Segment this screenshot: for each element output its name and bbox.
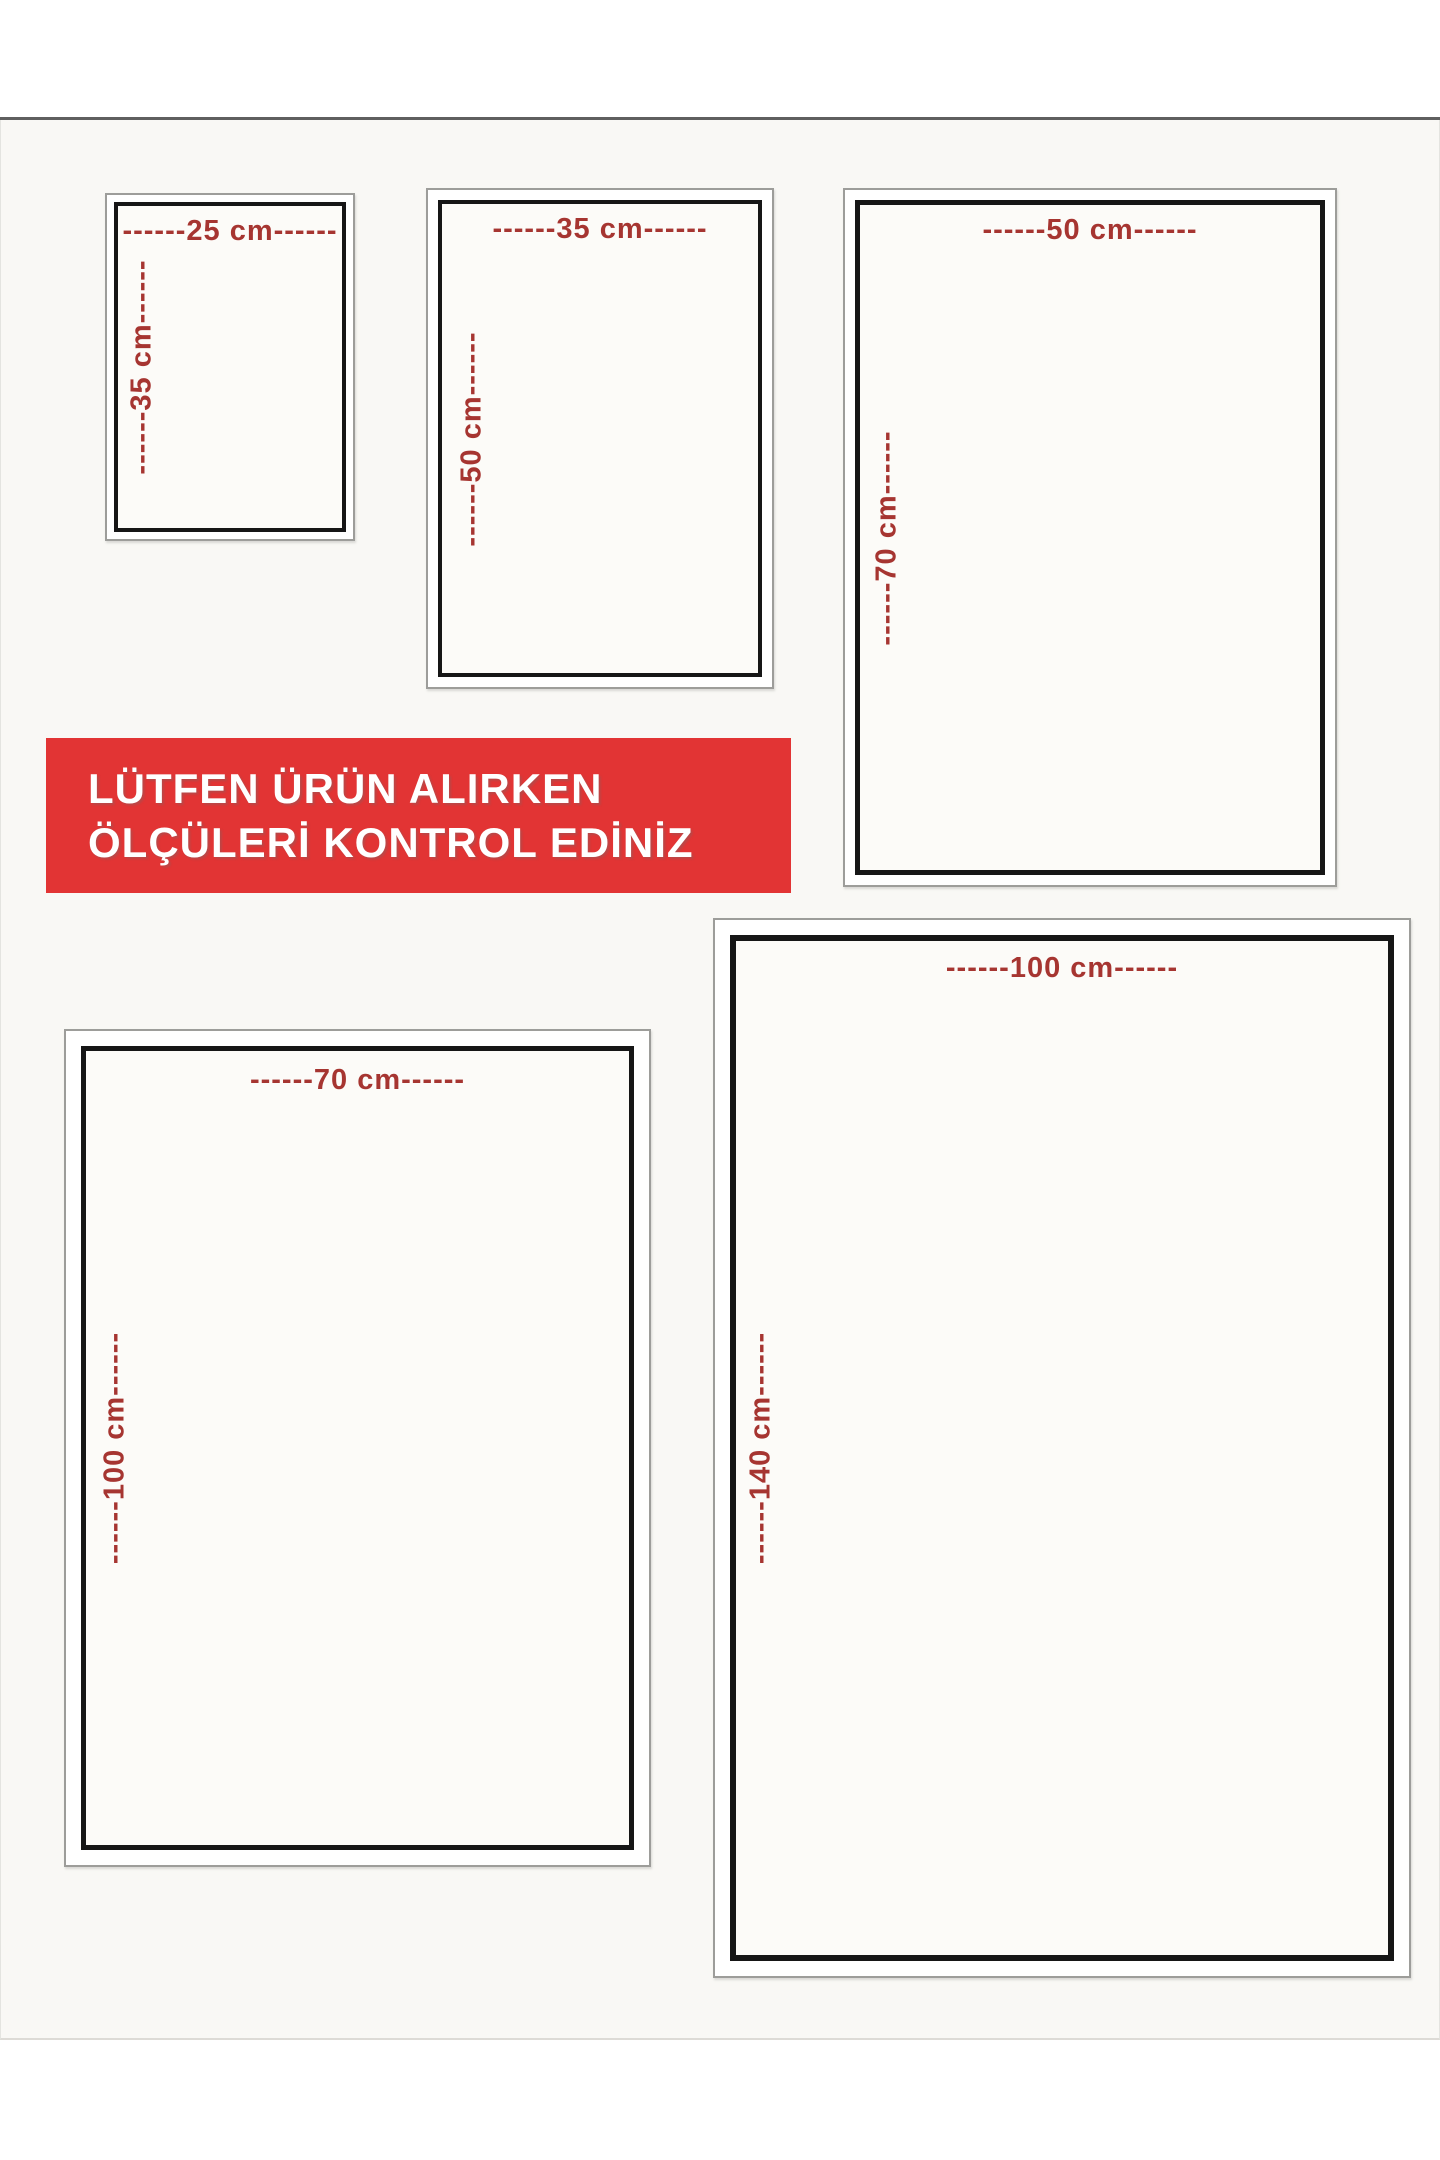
width-dimension-label: ------50 cm------ — [860, 214, 1320, 247]
size-box-70x100-inner: ------70 cm------ ------100 cm------ — [81, 1046, 634, 1850]
height-dimension-label: ------70 cm------ — [871, 430, 904, 645]
size-box-100x140-inner: ------100 cm------ ------140 cm------ — [730, 935, 1394, 1961]
warning-banner: LÜTFEN ÜRÜN ALIRKEN ÖLÇÜLERİ KONTROL EDİ… — [46, 738, 791, 893]
size-box-70x100: ------70 cm------ ------100 cm------ — [64, 1029, 651, 1867]
width-dimension-label: ------35 cm------ — [442, 213, 758, 246]
warning-banner-line-1: LÜTFEN ÜRÜN ALIRKEN — [88, 762, 791, 816]
size-box-50x70: ------50 cm------ ------70 cm------ — [843, 188, 1337, 887]
height-dimension-label: ------100 cm------ — [99, 1332, 132, 1564]
width-dimension-label: ------100 cm------ — [736, 952, 1388, 985]
height-dimension-label: ------50 cm------ — [456, 331, 489, 546]
width-dimension-label: ------25 cm------ — [118, 215, 342, 248]
size-guide-page: ------25 cm------ ------35 cm------ ----… — [0, 0, 1440, 2160]
size-box-100x140: ------100 cm------ ------140 cm------ — [713, 918, 1411, 1978]
height-dimension-label: ------140 cm------ — [745, 1332, 778, 1564]
size-box-25x35-inner: ------25 cm------ ------35 cm------ — [114, 202, 346, 532]
size-box-35x50: ------35 cm------ ------50 cm------ — [426, 188, 774, 689]
width-dimension-label: ------70 cm------ — [86, 1064, 629, 1097]
size-box-25x35: ------25 cm------ ------35 cm------ — [105, 193, 355, 541]
warning-banner-line-2: ÖLÇÜLERİ KONTROL EDİNİZ — [88, 816, 791, 870]
size-box-35x50-inner: ------35 cm------ ------50 cm------ — [438, 200, 762, 677]
height-dimension-label: ------35 cm------ — [126, 259, 159, 474]
content-area: ------25 cm------ ------35 cm------ ----… — [0, 120, 1440, 2040]
size-box-50x70-inner: ------50 cm------ ------70 cm------ — [855, 200, 1325, 875]
